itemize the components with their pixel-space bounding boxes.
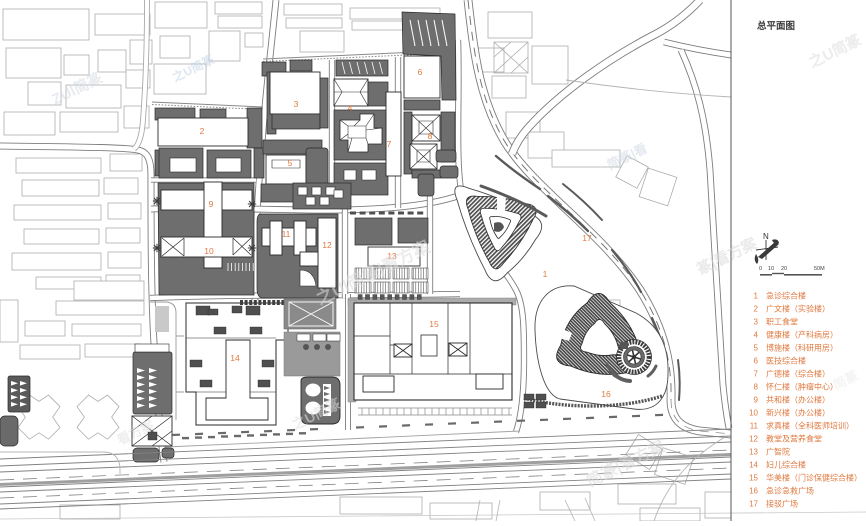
svg-text:共和楼（办公楼）: 共和楼（办公楼） — [766, 395, 830, 405]
svg-text:广文楼（实验楼）: 广文楼（实验楼） — [766, 304, 830, 314]
svg-text:5: 5 — [754, 344, 759, 353]
svg-text:16: 16 — [749, 487, 758, 496]
svg-text:妇儿综合楼: 妇儿综合楼 — [766, 460, 806, 470]
svg-text:怀仁楼（肿瘤中心）: 怀仁楼（肿瘤中心） — [766, 382, 838, 392]
svg-text:8: 8 — [428, 131, 433, 141]
svg-text:15: 15 — [749, 474, 758, 483]
svg-text:10: 10 — [204, 246, 214, 256]
svg-text:5: 5 — [288, 158, 293, 168]
svg-text:医技综合楼: 医技综合楼 — [766, 356, 806, 366]
svg-text:接驳广场: 接驳广场 — [766, 499, 798, 509]
svg-text:急诊急救广场: 急诊急救广场 — [766, 486, 814, 496]
svg-text:3: 3 — [294, 99, 299, 109]
svg-text:0: 0 — [759, 266, 762, 272]
svg-text:教堂及营养食堂: 教堂及营养食堂 — [766, 434, 822, 444]
svg-text:12: 12 — [322, 240, 332, 250]
svg-text:6: 6 — [418, 67, 423, 77]
svg-text:广智院: 广智院 — [766, 447, 790, 457]
svg-text:50M: 50M — [814, 266, 825, 272]
svg-text:14: 14 — [230, 353, 240, 363]
svg-text:9: 9 — [754, 396, 759, 405]
svg-text:7: 7 — [387, 139, 392, 149]
svg-text:10: 10 — [768, 266, 774, 272]
svg-text:求真楼（全科医师培训）: 求真楼（全科医师培训） — [766, 421, 854, 431]
svg-text:3: 3 — [754, 318, 759, 327]
svg-text:13: 13 — [749, 448, 758, 457]
svg-text:1: 1 — [543, 269, 548, 279]
svg-text:4: 4 — [754, 331, 759, 340]
svg-text:博施楼（科研用房）: 博施楼（科研用房） — [766, 343, 838, 353]
svg-text:1: 1 — [754, 292, 759, 301]
svg-text:6: 6 — [754, 357, 759, 366]
svg-text:职工食堂: 职工食堂 — [766, 317, 798, 327]
svg-text:华美楼（门诊保健综合楼）: 华美楼（门诊保健综合楼） — [766, 473, 862, 483]
svg-text:17: 17 — [749, 500, 758, 509]
svg-text:7: 7 — [754, 370, 759, 379]
svg-text:4: 4 — [348, 103, 353, 113]
svg-text:健康楼（产科病房）: 健康楼（产科病房） — [766, 330, 838, 340]
svg-text:11: 11 — [282, 229, 291, 239]
svg-text:15: 15 — [429, 319, 439, 329]
svg-text:10: 10 — [749, 409, 758, 418]
svg-text:N: N — [763, 232, 769, 241]
svg-text:16: 16 — [601, 389, 611, 399]
svg-text:14: 14 — [749, 461, 758, 470]
svg-text:2: 2 — [200, 126, 205, 136]
svg-text:急诊综合楼: 急诊综合楼 — [766, 291, 806, 301]
svg-text:9: 9 — [209, 199, 214, 209]
svg-text:17: 17 — [582, 233, 592, 243]
svg-text:8: 8 — [754, 383, 759, 392]
svg-text:12: 12 — [749, 435, 758, 444]
svg-text:总平面图: 总平面图 — [757, 20, 795, 32]
svg-text:11: 11 — [750, 422, 759, 431]
svg-text:广德楼（综合楼）: 广德楼（综合楼） — [766, 369, 830, 379]
svg-text:新兴楼（办公楼）: 新兴楼（办公楼） — [766, 408, 830, 418]
svg-text:20: 20 — [781, 266, 787, 272]
svg-text:2: 2 — [754, 305, 759, 314]
